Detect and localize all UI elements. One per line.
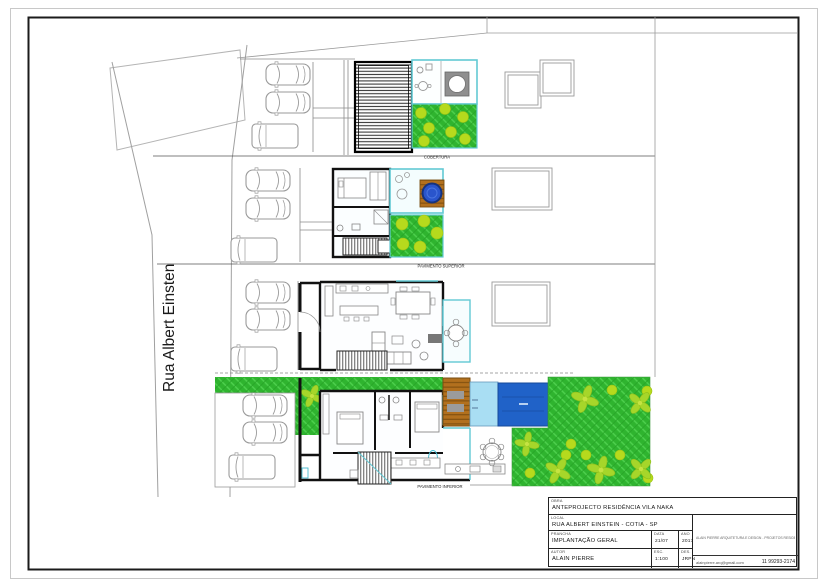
sheet-title-label: PRANCHA [551,532,571,536]
year-cell: ANO 2017 [679,531,693,548]
ground-floor-plan [300,281,443,370]
date-label: DATA [654,532,664,536]
sheet-title-cell: PRANCHA IMPLANTAÇÃO GERAL [549,531,652,548]
upper-terrace [390,169,444,213]
author-value: ALAIN PIERRE [552,556,594,562]
upper-floor-plan [333,169,390,257]
roof-plan-label: COBERTURA [424,155,450,160]
title-block: OBRA ANTEPROJECTO RESIDÊNCIA VILA NAKA L… [548,497,797,567]
phone-value: 11 99293-2174 [762,559,795,565]
upper-garden [390,215,443,257]
drafter-label: DES. [681,550,691,554]
project-name: ANTEPROJECTO RESIDÊNCIA VILA NAKA [552,505,674,511]
title-block-project-row: OBRA ANTEPROJECTO RESIDÊNCIA VILA NAKA [549,498,796,515]
email-value: alainpierre.arq@gmail.com [696,560,744,565]
street-name-label: Rua Albert Einsten [161,264,178,392]
ground-terrace [443,300,470,362]
lower-floor-label: PAVIMENTO INFERIOR [417,484,462,489]
project-label: OBRA [551,499,563,503]
upper-floor-label: PAVIMENTO SUPERIOR [417,264,464,269]
year-value: 2017 [682,539,693,544]
date-cell: DATA 21/07 [652,531,679,548]
address-value: RUA ALBERT EINSTEIN - COTIA - SP [552,522,658,528]
scale-cell: ESC. 1:100 [652,549,679,568]
title-block-office-box: ALAIN PIERRE ARQUITETURA E DESIGN - PROJ… [693,515,798,568]
address-label: LOCAL [551,516,564,520]
date-value: 21/07 [655,539,668,544]
scale-value: 1:100 [655,557,668,562]
drafter-cell: DES. JRPN [679,549,693,568]
office-info: ALAIN PIERRE ARQUITETURA E DESIGN - PROJ… [696,536,795,540]
sheet-title-value: IMPLANTAÇÃO GERAL [552,538,618,544]
scale-label: ESC. [654,550,664,554]
deck [443,378,470,426]
year-label: ANO [681,532,690,536]
author-cell: AUTOR ALAIN PIERRE [549,549,652,568]
roof-terrace [412,60,477,104]
parking-lower [215,393,295,487]
author-label: AUTOR [551,550,565,554]
title-block-address-row: LOCAL RUA ALBERT EINSTEIN - COTIA - SP [549,515,693,531]
title-block-sheet-row: PRANCHA IMPLANTAÇÃO GERAL DATA 21/07 ANO… [549,531,693,549]
pool [470,382,548,426]
roof-plan [355,62,412,152]
contact-strip: alainpierre.arq@gmail.com 11 99293-2174 [693,555,798,568]
roof-garden [412,104,477,149]
architectural-sheet: COBERTURA [0,0,827,587]
title-block-author-row: AUTOR ALAIN PIERRE ESC. 1:100 DES. JRPN [549,549,693,568]
